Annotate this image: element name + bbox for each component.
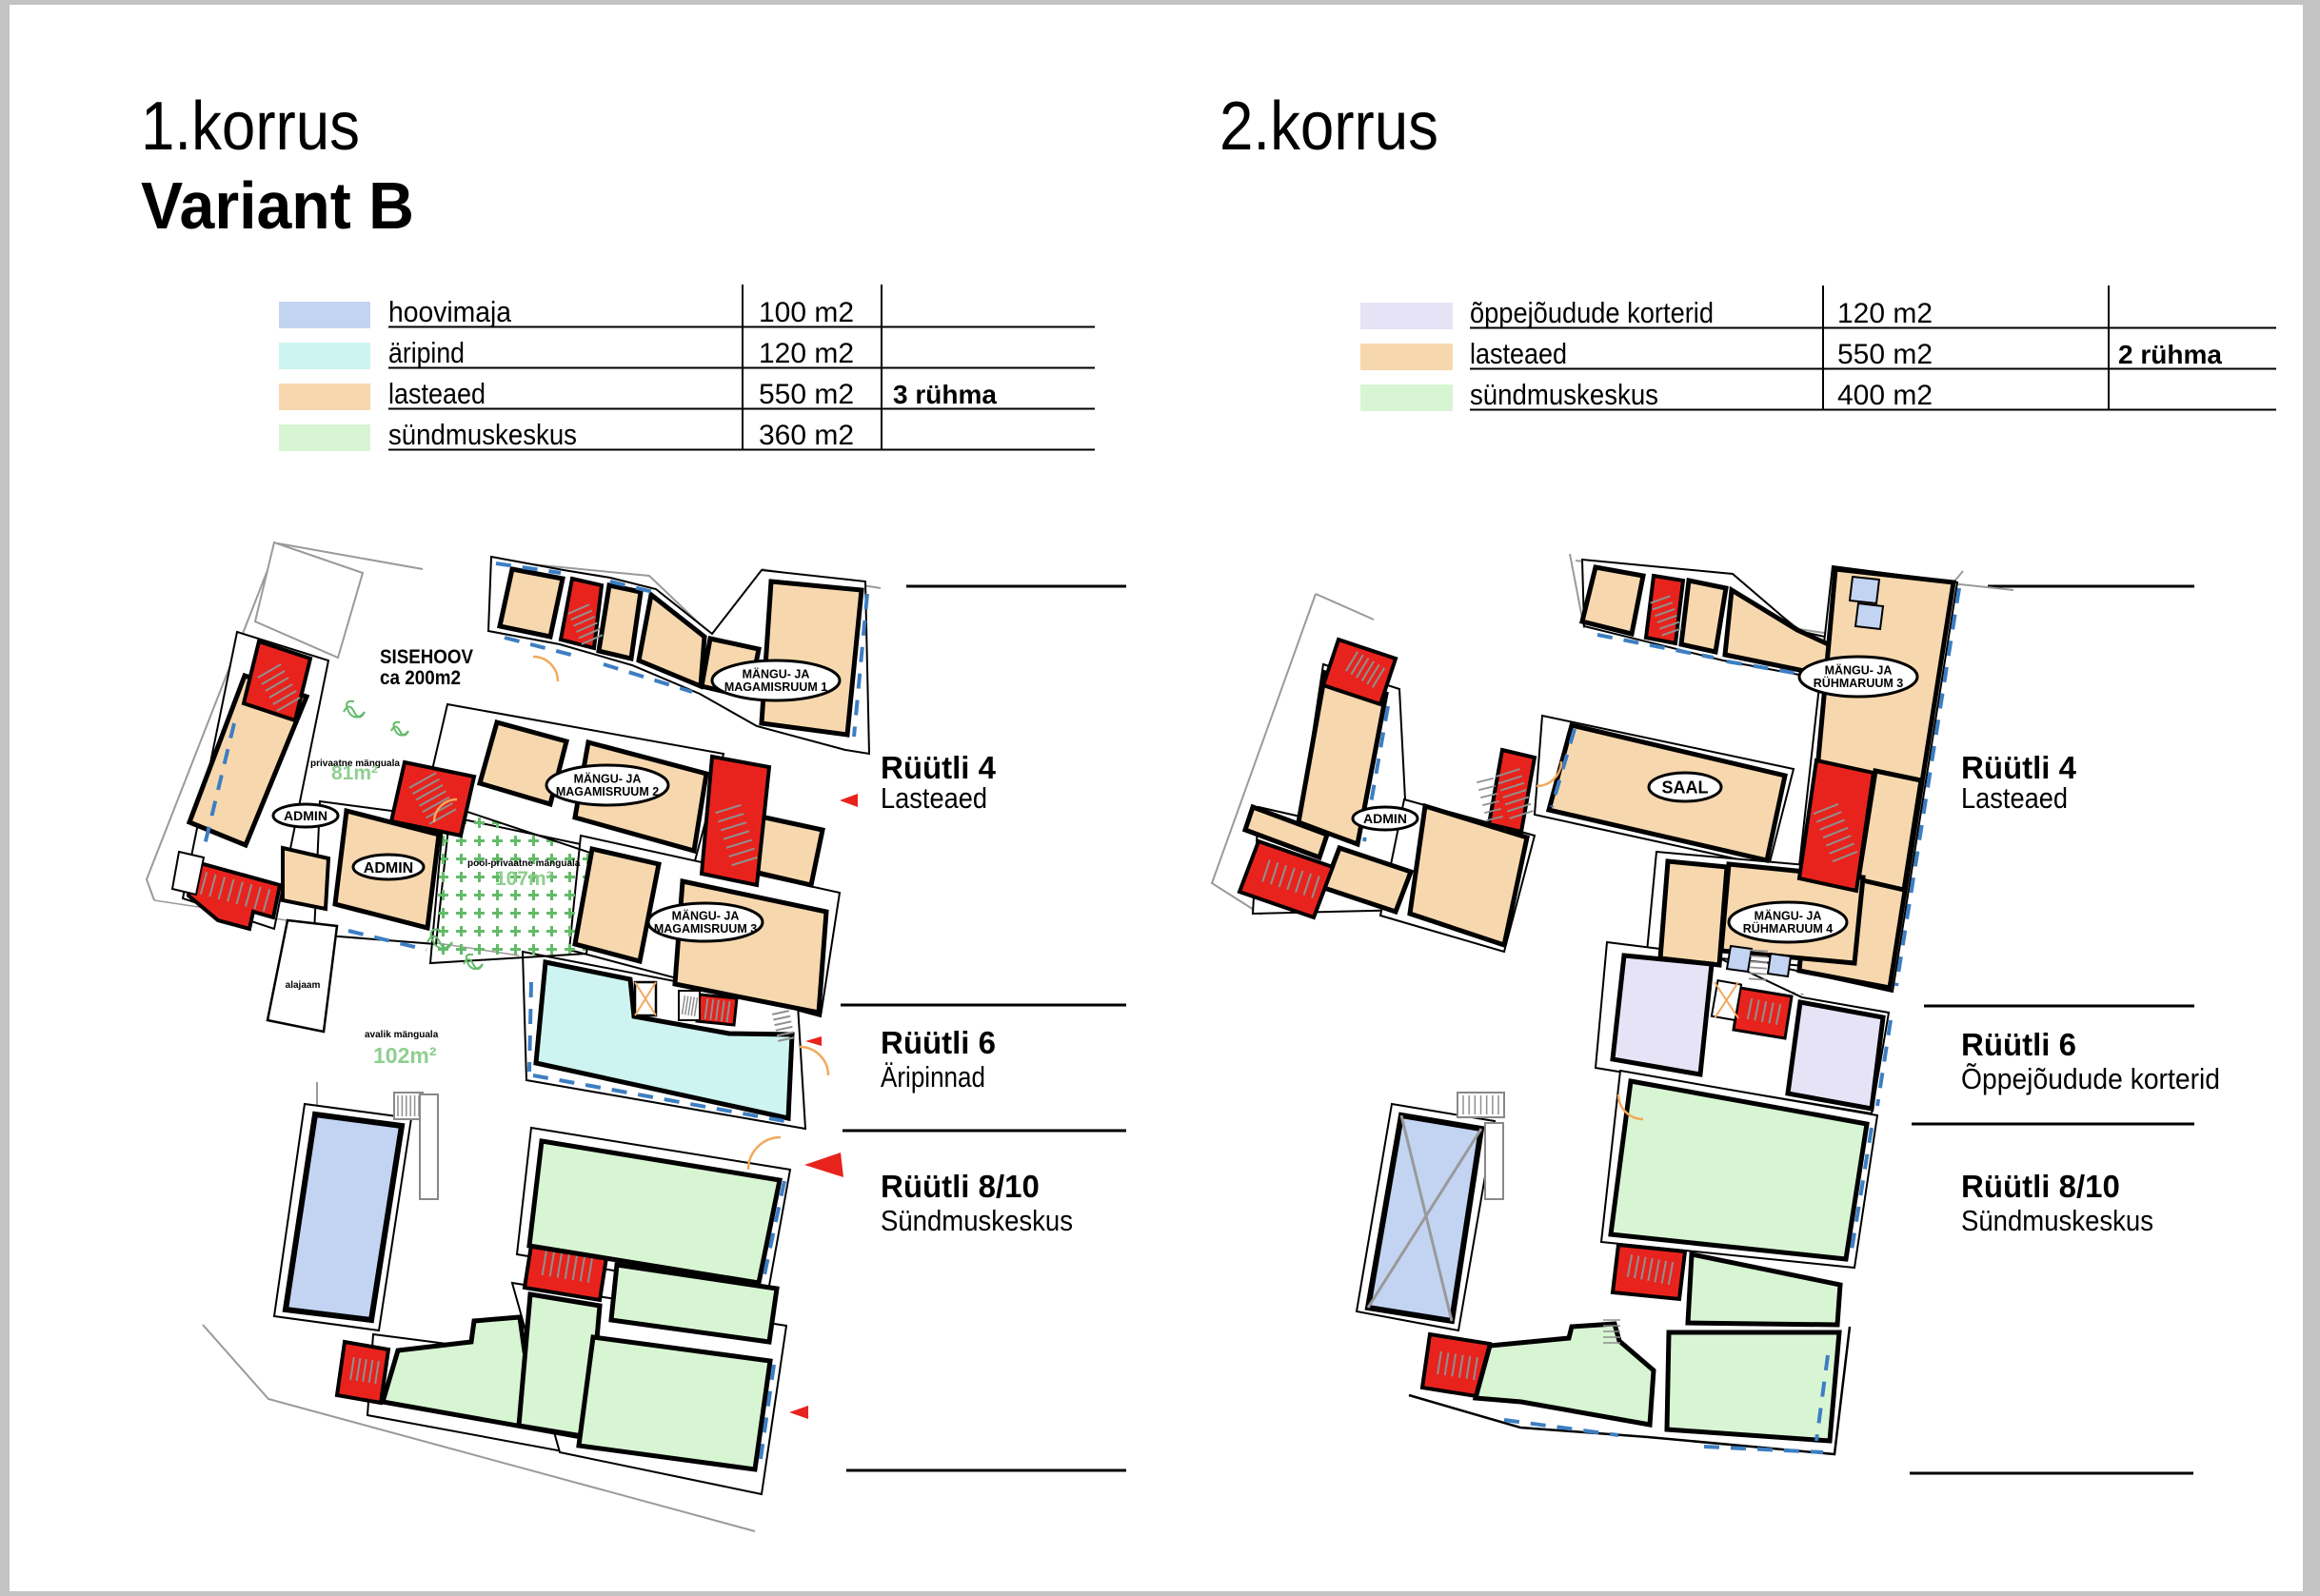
svg-text:360 m2: 360 m2 xyxy=(759,420,854,451)
svg-text:SISEHOOV: SISEHOOV xyxy=(380,646,473,668)
svg-text:107m²: 107m² xyxy=(495,868,553,890)
svg-text:MÄNGU- JA: MÄNGU- JA xyxy=(743,667,810,681)
svg-text:Sündmuskeskus: Sündmuskeskus xyxy=(1961,1204,2153,1237)
svg-text:MÄNGU- JA: MÄNGU- JA xyxy=(574,772,642,786)
svg-text:400 m2: 400 m2 xyxy=(1837,380,1933,411)
svg-text:lasteaed: lasteaed xyxy=(388,377,486,410)
svg-text:RÜHMARUUM 3: RÜHMARUUM 3 xyxy=(1814,676,1903,690)
svg-text:Äripinnad: Äripinnad xyxy=(881,1060,985,1094)
svg-text:ca 200m2: ca 200m2 xyxy=(380,667,461,689)
svg-text:81m²: 81m² xyxy=(331,762,378,784)
svg-text:Rüütli 4: Rüütli 4 xyxy=(1961,750,2077,785)
svg-text:sündmuskeskus: sündmuskeskus xyxy=(1470,378,1658,411)
svg-text:ADMIN: ADMIN xyxy=(364,860,413,877)
svg-text:120 m2: 120 m2 xyxy=(759,338,854,369)
svg-text:hoovimaja: hoovimaja xyxy=(388,295,512,328)
svg-text:Rüütli 8/10: Rüütli 8/10 xyxy=(1961,1169,2120,1204)
svg-text:Variant B: Variant B xyxy=(141,168,414,243)
svg-text:ADMIN: ADMIN xyxy=(284,808,327,823)
svg-text:2 rühma: 2 rühma xyxy=(2118,340,2222,369)
svg-text:Lasteaed: Lasteaed xyxy=(881,781,987,815)
svg-text:Rüütli 6: Rüütli 6 xyxy=(1961,1027,2076,1062)
svg-text:MAGAMISRUUM 1: MAGAMISRUUM 1 xyxy=(724,680,827,694)
svg-text:Sündmuskeskus: Sündmuskeskus xyxy=(881,1204,1073,1237)
svg-text:2.korrus: 2.korrus xyxy=(1219,89,1438,165)
svg-text:Rüütli 6: Rüütli 6 xyxy=(881,1025,996,1060)
svg-text:lasteaed: lasteaed xyxy=(1470,337,1567,370)
svg-text:ADMIN: ADMIN xyxy=(1363,811,1407,826)
svg-text:Õppejõudude korterid: Õppejõudude korterid xyxy=(1961,1062,2220,1095)
svg-text:MAGAMISRUUM 2: MAGAMISRUUM 2 xyxy=(556,785,659,798)
svg-text:Rüütli 4: Rüütli 4 xyxy=(881,750,997,785)
svg-text:äripind: äripind xyxy=(388,336,465,369)
svg-text:avalik mänguala: avalik mänguala xyxy=(365,1030,439,1040)
svg-text:alajaam: alajaam xyxy=(286,980,321,991)
svg-text:120 m2: 120 m2 xyxy=(1837,298,1933,329)
svg-text:550 m2: 550 m2 xyxy=(759,379,854,410)
svg-text:õppejõudude korterid: õppejõudude korterid xyxy=(1470,296,1714,329)
svg-text:MAGAMISRUUM 3: MAGAMISRUUM 3 xyxy=(654,922,757,936)
svg-text:SAAL: SAAL xyxy=(1662,778,1709,797)
svg-text:550 m2: 550 m2 xyxy=(1837,339,1933,370)
svg-text:Rüütli 8/10: Rüütli 8/10 xyxy=(881,1169,1040,1204)
svg-text:MÄNGU- JA: MÄNGU- JA xyxy=(1825,663,1893,678)
svg-text:3 rühma: 3 rühma xyxy=(893,380,997,409)
svg-text:sündmuskeskus: sündmuskeskus xyxy=(388,418,577,451)
svg-text:MÄNGU- JA: MÄNGU- JA xyxy=(672,909,740,923)
svg-text:MÄNGU- JA: MÄNGU- JA xyxy=(1755,909,1822,923)
svg-text:Lasteaed: Lasteaed xyxy=(1961,781,2068,815)
svg-text:1.korrus: 1.korrus xyxy=(141,89,360,165)
svg-text:102m²: 102m² xyxy=(373,1043,437,1068)
svg-text:RÜHMARUUM 4: RÜHMARUUM 4 xyxy=(1743,921,1833,936)
svg-text:100 m2: 100 m2 xyxy=(759,297,854,328)
